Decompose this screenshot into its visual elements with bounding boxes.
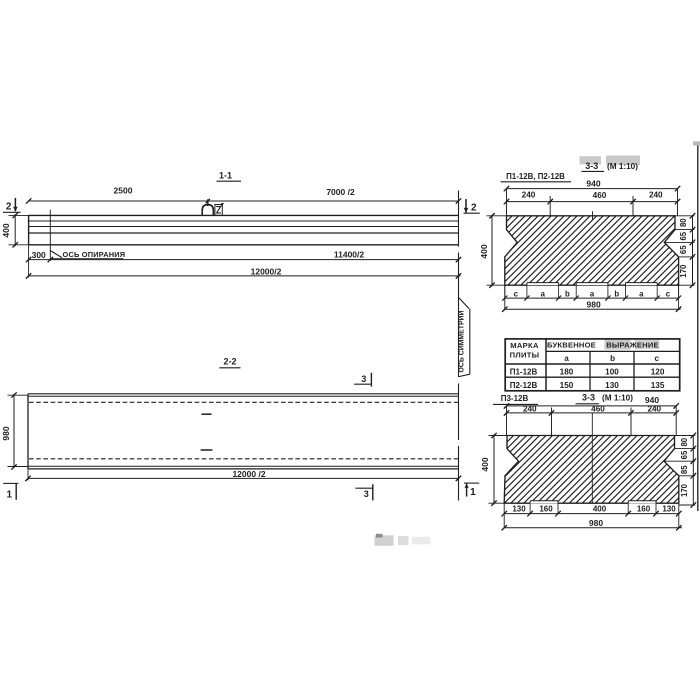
svg-text:130: 130 bbox=[662, 505, 676, 514]
svg-text:150: 150 bbox=[560, 381, 574, 390]
svg-text:240: 240 bbox=[523, 404, 537, 413]
svg-text:12000/2: 12000/2 bbox=[251, 267, 282, 277]
svg-text:а: а bbox=[639, 289, 644, 298]
svg-text:П1-12В, П2-12В: П1-12В, П2-12В bbox=[506, 172, 565, 181]
svg-text:а: а bbox=[590, 289, 595, 298]
svg-text:240: 240 bbox=[522, 191, 536, 200]
svg-text:100: 100 bbox=[605, 368, 619, 377]
svg-text:135: 135 bbox=[651, 381, 665, 390]
svg-text:2-2: 2-2 bbox=[223, 357, 236, 367]
svg-text:980: 980 bbox=[589, 518, 603, 528]
svg-text:460: 460 bbox=[591, 404, 605, 413]
svg-text:ОСЬ ОПИРАНИЯ: ОСЬ ОПИРАНИЯ bbox=[63, 250, 126, 259]
svg-text:с: с bbox=[514, 289, 519, 298]
svg-text:2: 2 bbox=[6, 201, 12, 212]
svg-text:300: 300 bbox=[32, 250, 46, 260]
svg-text:П2-12В: П2-12В bbox=[510, 381, 538, 390]
svg-text:120: 120 bbox=[651, 368, 665, 377]
svg-text:ПЛИТЫ: ПЛИТЫ bbox=[510, 351, 540, 360]
svg-text:с: с bbox=[655, 354, 660, 363]
svg-text:80: 80 bbox=[679, 218, 688, 227]
svg-text:а: а bbox=[564, 354, 569, 363]
svg-text:БУКВЕННОЕ: БУКВЕННОЕ bbox=[547, 341, 596, 350]
svg-text:130: 130 bbox=[512, 505, 526, 514]
svg-text:МАРКА: МАРКА bbox=[510, 341, 539, 350]
svg-text:b: b bbox=[614, 289, 619, 298]
svg-text:400: 400 bbox=[1, 223, 11, 237]
svg-text:(М 1:10): (М 1:10) bbox=[607, 162, 638, 171]
svg-text:240: 240 bbox=[649, 191, 663, 200]
svg-text:400: 400 bbox=[593, 505, 607, 514]
svg-text:1: 1 bbox=[7, 490, 13, 501]
svg-text:170: 170 bbox=[679, 264, 688, 278]
svg-text:12000 /2: 12000 /2 bbox=[232, 469, 265, 479]
svg-text:65: 65 bbox=[679, 231, 688, 240]
svg-text:400: 400 bbox=[479, 244, 489, 258]
svg-text:3: 3 bbox=[364, 489, 369, 499]
svg-text:1-1: 1-1 bbox=[219, 171, 232, 181]
svg-text:3-3: 3-3 bbox=[582, 393, 595, 403]
svg-text:2: 2 bbox=[471, 202, 477, 213]
svg-text:ОСЬ СИММЕТРИИ: ОСЬ СИММЕТРИИ bbox=[459, 310, 466, 372]
svg-text:240: 240 bbox=[647, 404, 661, 413]
svg-text:П3-12В: П3-12В bbox=[501, 394, 529, 403]
svg-text:80: 80 bbox=[680, 437, 689, 446]
svg-text:7000 /2: 7000 /2 bbox=[326, 187, 355, 197]
svg-text:11400/2: 11400/2 bbox=[334, 250, 365, 260]
svg-text:ВЫРАЖЕНИЕ: ВЫРАЖЕНИЕ bbox=[606, 341, 659, 350]
svg-text:160: 160 bbox=[637, 505, 651, 514]
svg-text:с: с bbox=[666, 289, 671, 298]
svg-text:400: 400 bbox=[480, 457, 490, 471]
svg-text:2500: 2500 bbox=[114, 186, 133, 196]
svg-text:460: 460 bbox=[593, 191, 607, 200]
svg-text:980: 980 bbox=[587, 299, 601, 309]
svg-text:85: 85 bbox=[680, 465, 689, 474]
svg-text:160: 160 bbox=[539, 505, 553, 514]
svg-text:а: а bbox=[541, 289, 546, 298]
svg-text:65: 65 bbox=[679, 245, 688, 254]
svg-text:b: b bbox=[610, 354, 615, 363]
svg-text:b: b bbox=[565, 289, 570, 298]
svg-text:65: 65 bbox=[680, 450, 689, 459]
svg-text:940: 940 bbox=[586, 179, 600, 189]
svg-text:3: 3 bbox=[361, 374, 366, 384]
svg-text:3-3: 3-3 bbox=[585, 161, 598, 171]
svg-text:180: 180 bbox=[560, 368, 574, 377]
svg-text:170: 170 bbox=[680, 483, 689, 497]
svg-text:980: 980 bbox=[1, 426, 11, 440]
svg-text:130: 130 bbox=[605, 381, 619, 390]
svg-text:(М 1:10): (М 1:10) bbox=[602, 394, 633, 403]
svg-text:П1-12В: П1-12В bbox=[510, 368, 538, 377]
svg-text:1: 1 bbox=[470, 487, 476, 498]
